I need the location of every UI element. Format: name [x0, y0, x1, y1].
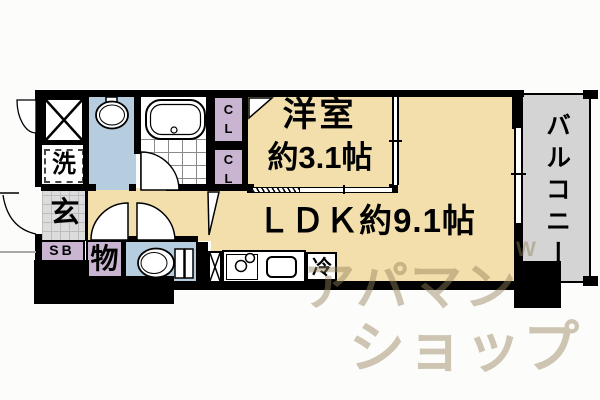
ldk-label: ＬＤＫ約9.1帖 — [224, 203, 509, 239]
stove-box — [226, 254, 258, 280]
entrance-label: 玄 — [47, 198, 83, 230]
floor-plan: 洋室 約3.1帖 ＬＤＫ約9.1帖 バルコニー 玄 物 洗 SB C L C L… — [0, 0, 600, 400]
balcony-rail-right — [589, 93, 591, 283]
washroom — [88, 96, 136, 190]
balcony-rail-top — [521, 93, 591, 95]
balcony-label: バルコニー — [542, 104, 570, 280]
wall-top — [35, 90, 524, 97]
wall-left-upper — [35, 90, 42, 187]
window-tick — [511, 173, 526, 175]
balcony-rail-bottom — [521, 281, 591, 283]
slide-tick — [343, 185, 345, 194]
wall-toilet-top — [121, 236, 198, 242]
sliding-door-track — [300, 187, 392, 193]
watermark-line2: ショップ — [349, 303, 581, 384]
trunk-room-box — [41, 95, 87, 145]
refrigerator-label: 冷 — [309, 257, 335, 279]
balcony-window — [514, 128, 523, 223]
sliding-door-panel — [252, 187, 300, 193]
wall-bottom — [172, 281, 521, 290]
wall-mass-sw2 — [88, 276, 174, 304]
wall-washcol — [83, 96, 89, 189]
wall-balcony-lower — [514, 222, 523, 263]
door-arc-entrance — [3, 195, 36, 234]
western-room-size: 約3.1帖 — [240, 141, 400, 175]
kitchen-sink — [266, 256, 297, 278]
wall-wet-bottom-stub — [129, 184, 136, 191]
wall-wash-bath — [134, 96, 141, 154]
room-ldk-right — [397, 96, 518, 284]
door-arc-exterior-top — [17, 100, 36, 133]
shoe-box-label: SB — [39, 243, 85, 258]
entrance-step-line — [0, 251, 36, 253]
storage-label: 物 — [87, 244, 122, 275]
balcony-cap-topright — [583, 90, 598, 99]
bathroom-tiles — [140, 139, 207, 190]
pipe-space-box — [208, 251, 222, 283]
wall-toilet-right — [196, 242, 208, 282]
wall-mass-sw1 — [34, 260, 89, 304]
closet-lower-label: C L — [213, 151, 244, 189]
wall-balcony-upper — [512, 90, 523, 129]
hallway — [86, 188, 213, 241]
closet-upper-label: C L — [213, 101, 244, 139]
balcony-cap-bottomright — [583, 276, 598, 286]
western-room-name: 洋室 — [246, 97, 393, 134]
wall-hall-genkan — [85, 188, 88, 241]
washer-label: 洗 — [47, 152, 81, 178]
